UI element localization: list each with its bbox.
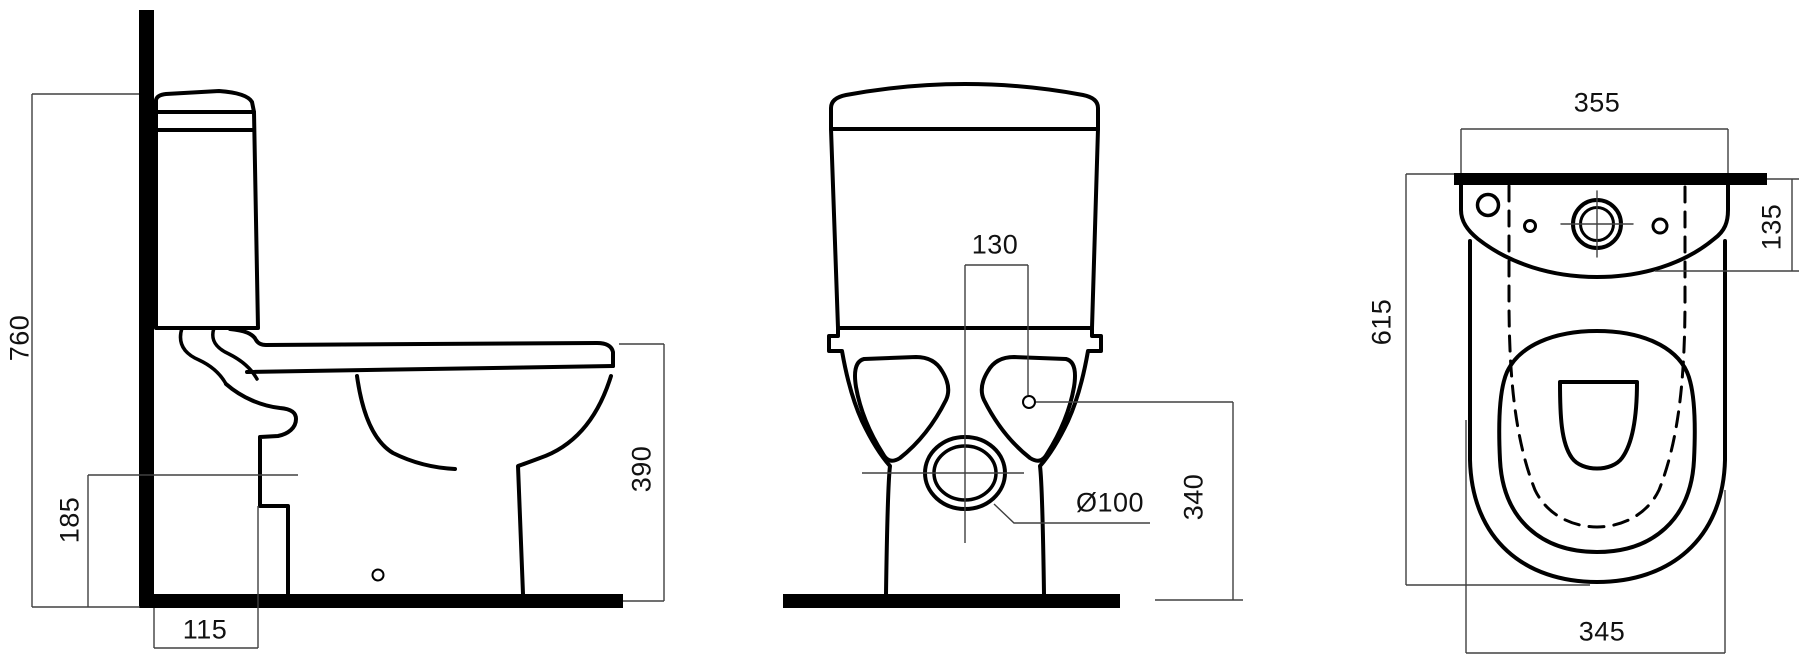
dim-355-lines: [1461, 129, 1728, 173]
inlet-crosshair: [1561, 191, 1633, 257]
bowl-right-outline: [1040, 328, 1101, 594]
dim-label-wall-clearance: 115: [183, 617, 228, 644]
seat-top-line: [230, 329, 613, 366]
cistern-body: [156, 112, 258, 328]
side-view: [139, 10, 623, 608]
dim-label-total-depth: 615: [1369, 299, 1396, 346]
dim-label-cistern-depth: 135: [1759, 204, 1786, 251]
bowl-interior-curve: [357, 376, 455, 469]
seat-outline: [1499, 331, 1694, 552]
seat-rim-line: [247, 366, 613, 372]
bowl-front-curve: [518, 376, 611, 594]
dim-label-hole-offset: 130: [972, 232, 1019, 259]
flush-passage-outer-curve: [181, 328, 226, 384]
floor-bar: [783, 594, 1120, 608]
technical-drawing-canvas: 760 185 115 390 130 Ø100 340 355 135 615…: [0, 0, 1800, 662]
dim-label-total-height: 760: [7, 315, 34, 362]
dim-label-width: 355: [1574, 90, 1621, 117]
fixing-hole-left: [1525, 221, 1536, 232]
dim-label-outlet-diameter: Ø100: [1076, 490, 1144, 517]
left-wing-cutout: [855, 357, 948, 461]
front-view-dimensions: [862, 265, 1243, 600]
dim-label-bowl-height: 390: [629, 446, 656, 493]
fixing-hole: [1023, 396, 1035, 408]
fixing-hole: [373, 570, 384, 581]
flush-opening: [1560, 382, 1637, 469]
dim-label-hole-height: 340: [1181, 474, 1208, 521]
overflow-hole: [1478, 195, 1499, 216]
toilet-dimension-drawing: [0, 0, 1800, 662]
cistern-lid: [831, 84, 1098, 129]
dim-615-lines: [1406, 174, 1590, 585]
dim-label-outlet-offset: 185: [57, 497, 84, 544]
cistern-lid: [156, 91, 254, 112]
fixing-hole-right: [1653, 219, 1667, 233]
bowl-left-outline: [829, 328, 890, 594]
front-view: [783, 84, 1120, 608]
wall-section: [139, 10, 154, 608]
floor-section: [139, 594, 623, 608]
trap-outline: [226, 384, 296, 594]
dim-760-lines: [32, 94, 140, 607]
dim-185-lines: [88, 475, 298, 607]
dim-label-bowl-width: 345: [1579, 619, 1626, 646]
wall-bar: [1454, 173, 1767, 185]
top-view: [1454, 173, 1767, 582]
